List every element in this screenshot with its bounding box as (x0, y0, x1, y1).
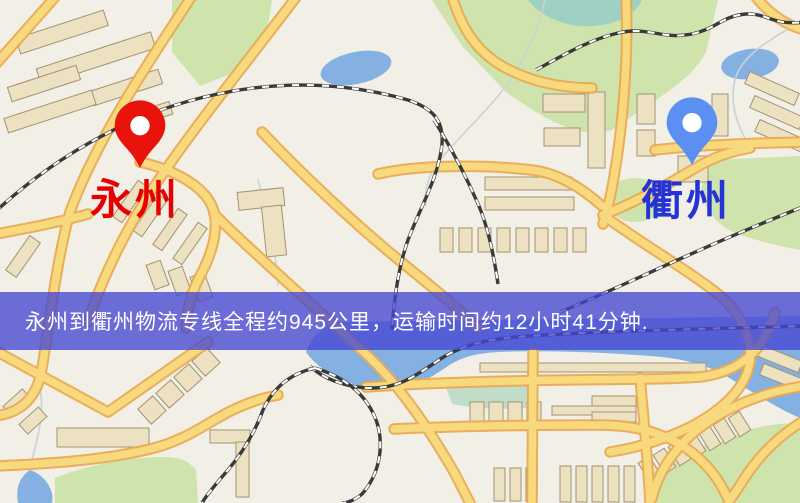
route-banner-text: 永州到衢州物流专线全程约945公里，运输时间约12小时41分钟. (25, 306, 649, 336)
destination-label: 衢州 (641, 181, 731, 223)
origin-label: 永州 (90, 180, 180, 222)
map-view: 永州 衢州 永州到衢州物流专线全程约945公里，运输时间约12小时41分钟. (0, 0, 800, 503)
route-banner: 永州到衢州物流专线全程约945公里，运输时间约12小时41分钟. (0, 292, 800, 350)
map-canvas[interactable] (0, 0, 800, 503)
